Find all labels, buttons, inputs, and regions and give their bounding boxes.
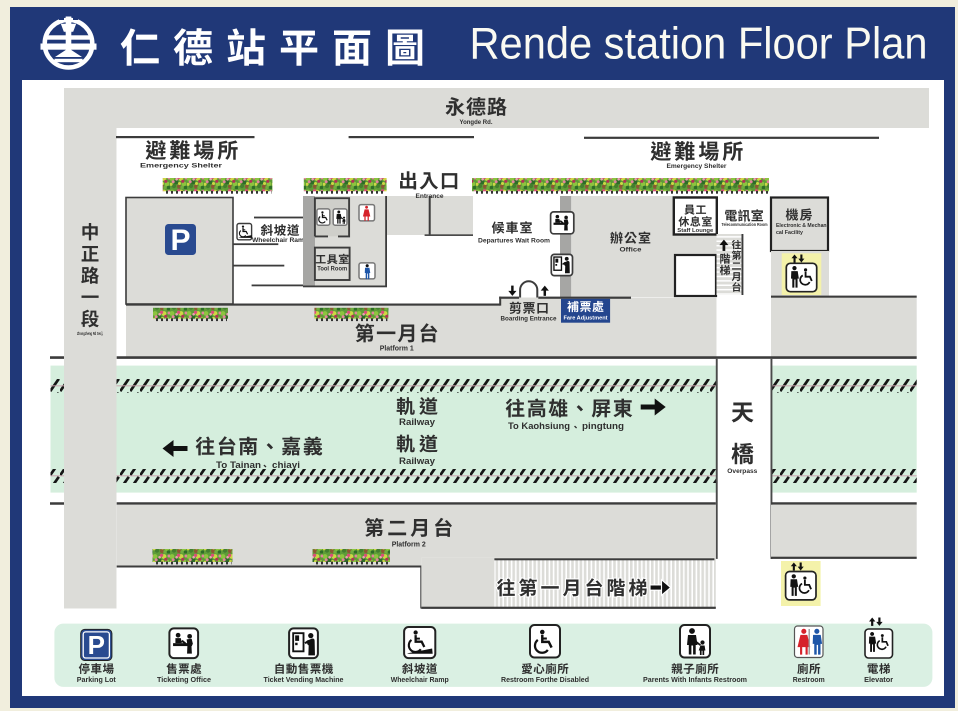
svg-text:Restroom Forthe Disabled: Restroom Forthe Disabled [501,675,589,684]
svg-text:Rende station Floor Plan: Rende station Floor Plan [470,19,928,68]
svg-text:Staff Lounge: Staff Lounge [677,228,714,234]
svg-text:Platform 1: Platform 1 [380,343,415,352]
svg-text:Departures Wait Room: Departures Wait Room [478,238,550,245]
svg-text:Electronic & Mechani: Electronic & Mechani [776,223,829,229]
svg-text:P: P [88,630,105,660]
svg-text:Office: Office [620,247,643,254]
svg-text:Wheelchair Ramp: Wheelchair Ramp [391,675,450,684]
svg-text:pingtung: pingtung [582,421,624,432]
svg-text:Restroom: Restroom [793,675,825,684]
svg-text:Elevator: Elevator [864,675,893,684]
svg-text:P: P [170,224,190,257]
svg-text:Tool Room: Tool Room [317,266,347,272]
svg-text:Parking Lot: Parking Lot [77,675,117,684]
svg-text:Platform 2: Platform 2 [392,540,426,549]
svg-text:Emergency Shelter: Emergency Shelter [667,163,727,170]
svg-text:Boarding Entrance: Boarding Entrance [501,316,557,323]
svg-text:Emergency Shelter: Emergency Shelter [140,162,222,169]
svg-text:cal Facility: cal Facility [776,230,803,236]
svg-text:Yongde Rd.: Yongde Rd. [460,119,493,126]
svg-text:Ticketing Office: Ticketing Office [157,675,211,684]
svg-text:chiayi: chiayi [272,460,300,471]
svg-text:To Kaohsiung: To Kaohsiung [508,421,570,432]
svg-text:Zhongzheng Rd Sec].: Zhongzheng Rd Sec]. [77,331,103,336]
svg-text:Parents With Infants Restroom: Parents With Infants Restroom [643,675,747,684]
svg-text:Entrance: Entrance [416,193,444,200]
svg-text:Wheelchair Ramp: Wheelchair Ramp [252,237,308,244]
svg-text:Ticket Vending Machine: Ticket Vending Machine [264,675,344,684]
svg-text:Fare Adjustment: Fare Adjustment [564,316,608,322]
svg-text:Overpass: Overpass [727,468,757,475]
svg-text:Railway: Railway [399,417,436,428]
svg-text:Telecommunication Room: Telecommunication Room [722,222,768,227]
svg-text:Railway: Railway [399,456,436,467]
svg-text:To Tainan: To Tainan [216,460,261,471]
